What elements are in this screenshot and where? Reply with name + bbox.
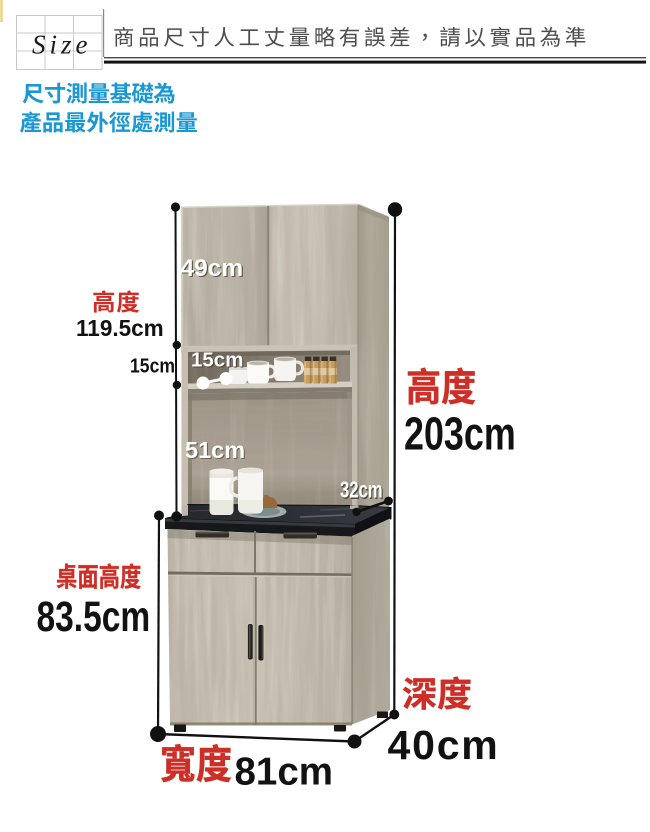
svg-text:81cm: 81cm xyxy=(235,751,333,794)
svg-text:49cm: 49cm xyxy=(181,255,244,282)
svg-text:40cm: 40cm xyxy=(388,722,500,768)
svg-text:32cm: 32cm xyxy=(340,478,383,503)
svg-text:15cm: 15cm xyxy=(130,354,175,376)
svg-text:15cm: 15cm xyxy=(191,349,243,372)
svg-text:83.5cm: 83.5cm xyxy=(37,593,151,641)
svg-text:203cm: 203cm xyxy=(404,408,516,459)
svg-text:Size: Size xyxy=(32,30,92,60)
svg-text:51cm: 51cm xyxy=(185,437,245,463)
svg-text:119.5cm: 119.5cm xyxy=(76,315,164,341)
